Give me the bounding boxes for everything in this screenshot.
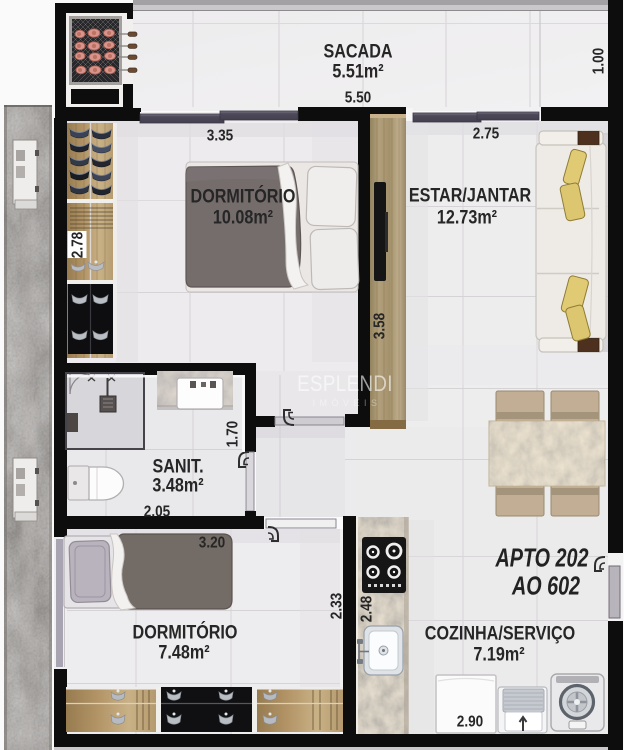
svg-text:7.19m²: 7.19m²	[473, 643, 524, 665]
svg-text:ESTAR/JANTAR: ESTAR/JANTAR	[409, 184, 532, 206]
svg-text:SACADA: SACADA	[323, 40, 392, 62]
svg-text:3.58: 3.58	[372, 313, 389, 339]
svg-text:2.33: 2.33	[329, 593, 346, 619]
svg-text:COZINHA/SERVIÇO: COZINHA/SERVIÇO	[425, 622, 575, 644]
svg-text:3.48m²: 3.48m²	[152, 474, 203, 496]
svg-text:IMÓVEIS: IMÓVEIS	[312, 398, 381, 408]
svg-text:APTO 202: APTO 202	[495, 543, 589, 572]
svg-text:2.48: 2.48	[359, 596, 376, 622]
svg-text:2.05: 2.05	[144, 504, 170, 521]
svg-text:10.08m²: 10.08m²	[213, 206, 273, 228]
svg-text:7.48m²: 7.48m²	[158, 641, 209, 663]
svg-text:5.50: 5.50	[345, 90, 371, 107]
svg-text:3.20: 3.20	[199, 535, 225, 552]
svg-text:1.00: 1.00	[591, 48, 608, 74]
svg-text:2.90: 2.90	[457, 714, 483, 731]
svg-text:3.35: 3.35	[207, 128, 233, 145]
svg-text:2.78: 2.78	[70, 232, 87, 258]
svg-text:2.75: 2.75	[473, 126, 499, 143]
svg-text:1.70: 1.70	[225, 421, 242, 447]
svg-text:DORMITÓRIO: DORMITÓRIO	[191, 184, 296, 207]
svg-text:ESPLENDI: ESPLENDI	[297, 373, 393, 397]
svg-text:AO 602: AO 602	[511, 571, 580, 600]
svg-text:5.51m²: 5.51m²	[332, 60, 383, 82]
svg-text:12.73m²: 12.73m²	[437, 206, 497, 228]
svg-text:DORMITÓRIO: DORMITÓRIO	[133, 620, 238, 643]
